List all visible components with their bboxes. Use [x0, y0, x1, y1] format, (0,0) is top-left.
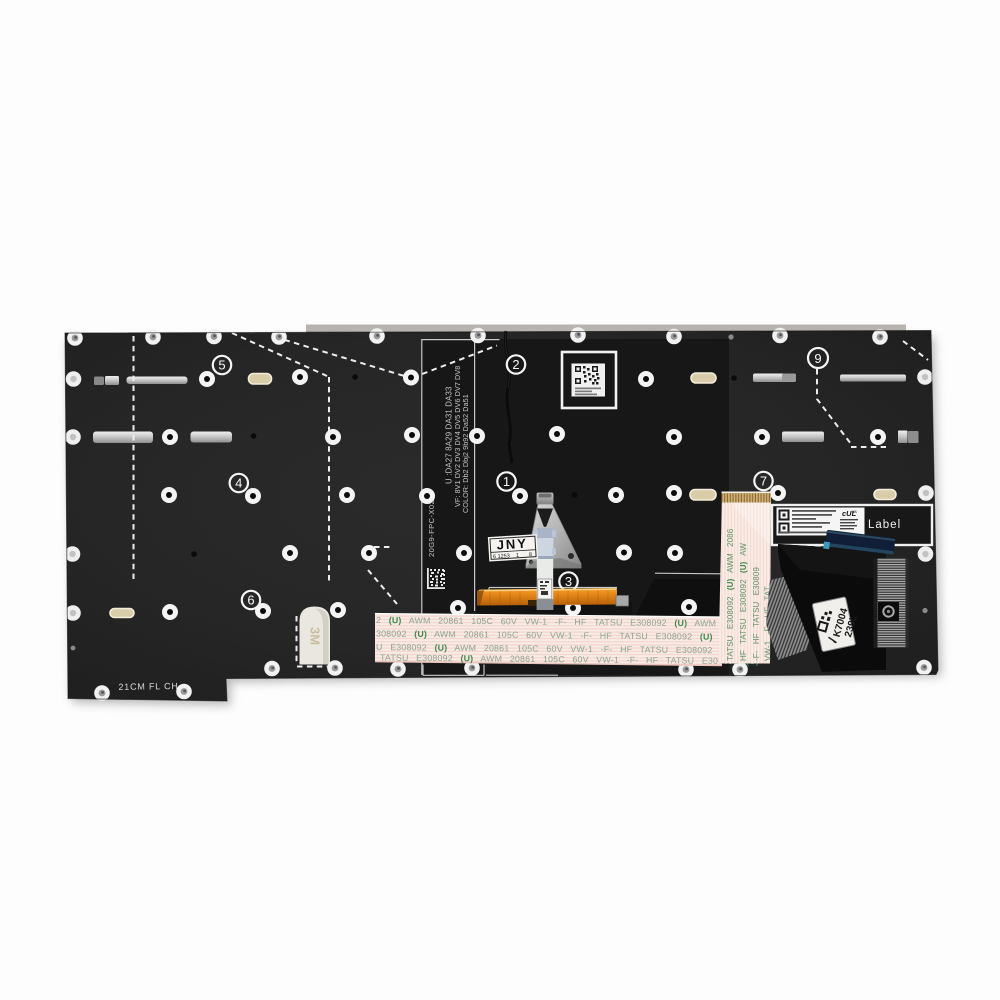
svg-text:21CM FL CH: 21CM FL CH [118, 681, 178, 692]
svg-text:-F- HF TATSU E30809: -F- HF TATSU E30809 [752, 567, 761, 661]
svg-text:3M: 3M [308, 627, 323, 645]
svg-text:us: us [852, 509, 858, 514]
svg-text:1: 1 [516, 553, 519, 559]
svg-text:8: 8 [529, 552, 532, 558]
svg-text:Label: Label [868, 519, 901, 531]
svg-text:9: 9 [814, 351, 821, 366]
svg-text:5: 5 [218, 358, 225, 373]
svg-text:4: 4 [235, 476, 242, 491]
svg-text:2: 2 [512, 357, 519, 372]
svg-text:3: 3 [565, 574, 572, 589]
svg-text:HF TATSU E308092 (U) AW: HF TATSU E308092 (U) AW [739, 543, 748, 661]
svg-text:1: 1 [503, 474, 510, 489]
svg-text:6 1253: 6 1253 [493, 553, 510, 560]
svg-text:COLOR: Db2 Dbj2 9b92 Da52 Da51: COLOR: Db2 Dbj2 9b92 Da52 Da51 [461, 394, 470, 513]
svg-text:JNY: JNY [496, 536, 528, 553]
svg-text:20G9-FPC-X02: 20G9-FPC-X02 [427, 500, 436, 557]
svg-text:6: 6 [247, 593, 254, 608]
svg-text:TATSU E308092 (U) AWM 2086: TATSU E308092 (U) AWM 2086 [726, 528, 735, 661]
svg-text:7: 7 [760, 474, 767, 489]
